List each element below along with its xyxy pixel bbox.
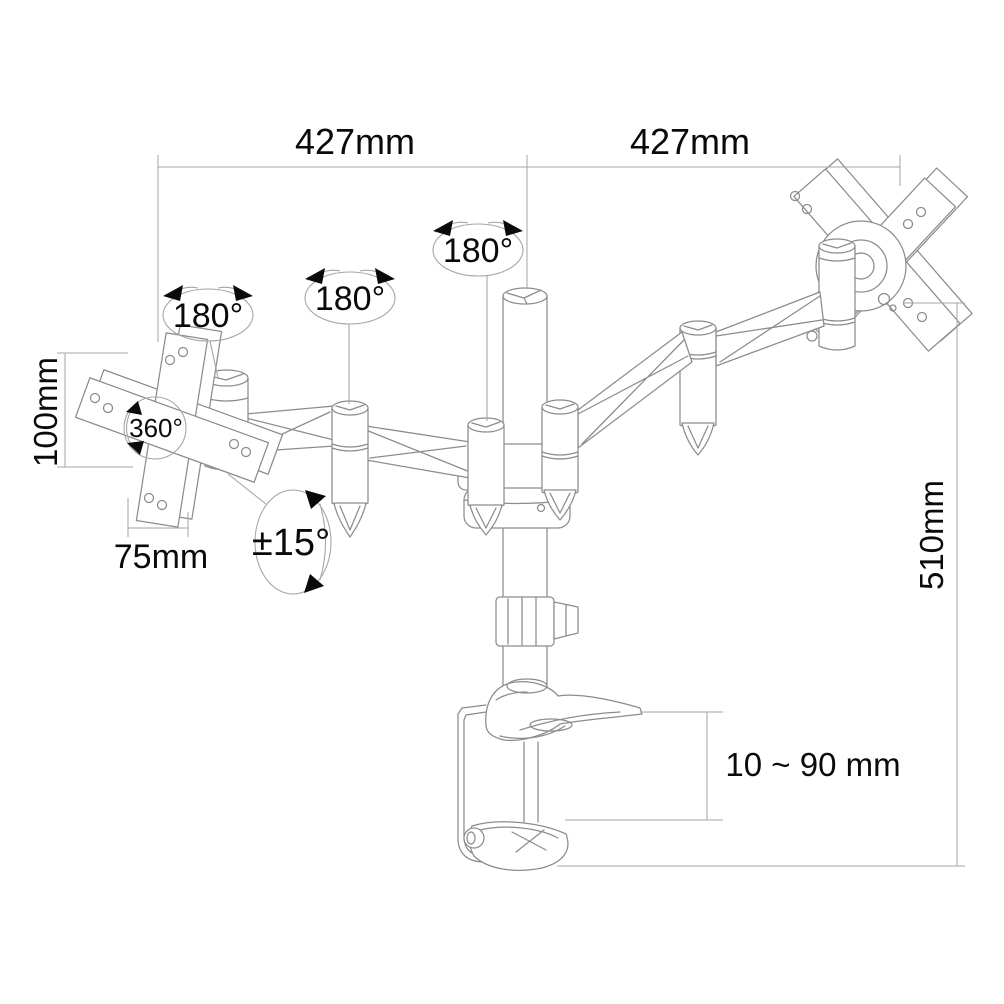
rotation-arrow-icon xyxy=(305,490,326,509)
rotation-label-mid: 180° xyxy=(315,280,385,318)
tilt-note: ±15° xyxy=(252,490,331,594)
dim-label-vesa-width: 75mm xyxy=(114,538,208,576)
lower-arm-left xyxy=(366,426,470,478)
diagram-canvas: 427mm 427mm 100mm 75mm 510mm 10 ~ 90 mm … xyxy=(0,0,1004,1004)
dim-label-vesa-height: 100mm xyxy=(27,357,64,467)
rotation-note-mid: 180° xyxy=(305,268,395,324)
right-end-joint xyxy=(819,239,855,350)
dim-label-clamp-range: 10 ~ 90 mm xyxy=(725,746,900,783)
lower-arm-right xyxy=(578,332,692,448)
rotation-note-left: 180° xyxy=(163,285,253,341)
upper-arm-right xyxy=(716,292,824,366)
desk-clamp xyxy=(458,679,642,870)
rotation-arrow-icon xyxy=(127,441,144,455)
cable-clip xyxy=(334,503,366,537)
pole-collar xyxy=(496,597,578,646)
vesa-screw xyxy=(807,331,817,341)
rotation-note-pole: 180° xyxy=(433,220,523,276)
rotation-label-left: 180° xyxy=(173,297,243,335)
diagram: 427mm 427mm 100mm 75mm 510mm 10 ~ 90 mm … xyxy=(0,0,1004,1004)
cable-clip xyxy=(682,423,714,455)
dim-label-pole-height: 510mm xyxy=(913,480,950,590)
rotation-label-pole: 180° xyxy=(443,232,513,270)
rotation-label-vesa: 360° xyxy=(129,413,183,443)
dimension-clamp-range: 10 ~ 90 mm xyxy=(565,712,901,820)
dim-label-arm-reach-right: 427mm xyxy=(630,121,750,162)
tilt-label: ±15° xyxy=(252,522,330,564)
dim-label-arm-reach-left: 427mm xyxy=(295,121,415,162)
mid-left-joint xyxy=(332,401,368,537)
